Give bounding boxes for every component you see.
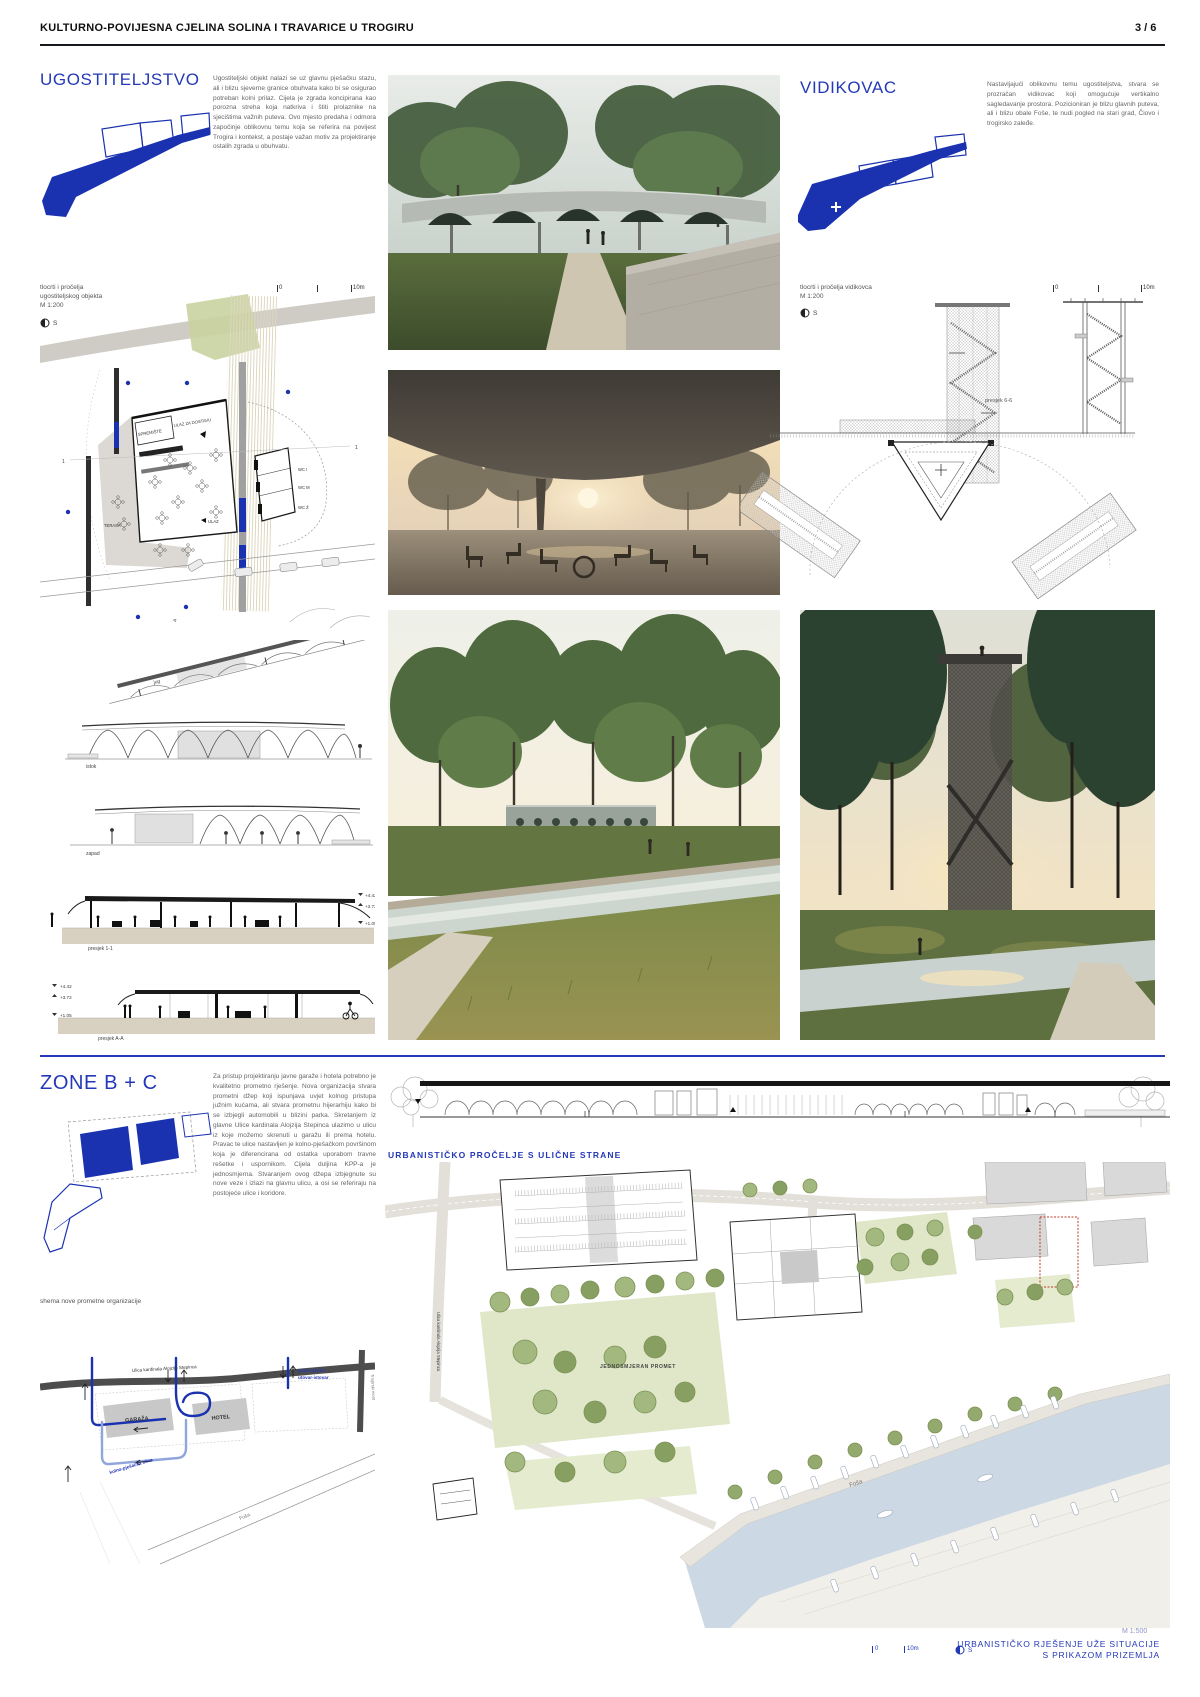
elevation-jug: jug xyxy=(40,640,375,715)
traffic-schema-label: shema nove prometne organizacije xyxy=(40,1298,141,1307)
ugostiteljstvo-floor-plan: SPREMIŠTE ULAZ ZA DOSTAVU WC I WC M WC Ž… xyxy=(40,250,375,640)
small-pavilion xyxy=(433,1478,477,1520)
label-wc-m: WC M xyxy=(298,485,310,490)
elevation-istok: istok xyxy=(40,716,375,771)
label-oneway: JEDNOSMJERAN PROMET xyxy=(600,1364,676,1370)
svg-text:+1.05: +1.05 xyxy=(365,921,375,926)
label-pedestrian-street: kolno-pješačka ulica xyxy=(109,1457,154,1475)
label-terasa: TERASA xyxy=(104,523,121,528)
render-pavilion-exterior xyxy=(388,75,780,350)
level-markers-left: +4.42 +3.72 +1.05 xyxy=(52,984,72,1018)
label-presjek-a-a: presjek A-A xyxy=(98,1036,124,1042)
label-street-vertical: Ulica kardinala Alojzija Stepinca xyxy=(436,1312,441,1372)
elevation-zapad: zapad xyxy=(40,800,375,858)
label-bridge: Trogirski most xyxy=(370,1374,375,1401)
render-park-view xyxy=(388,610,780,1040)
vidikovac-caption: tlocrti i pročelja vidikovca M 1:200 xyxy=(800,284,872,302)
tower xyxy=(938,646,1022,920)
svg-text:+1.05: +1.05 xyxy=(60,1013,72,1018)
wc-block xyxy=(254,448,295,521)
section-marker-1-left: 1 xyxy=(62,459,65,465)
garage-building xyxy=(500,1170,697,1270)
triangle-core xyxy=(888,440,994,520)
label-market-access-1: prilaz tržnici xyxy=(298,1368,325,1373)
vidikovac-paragraph: Nastavljajući oblikovnu temu ugostiteljs… xyxy=(987,80,1159,129)
map-scale: M 1:500 xyxy=(1122,1628,1147,1635)
section-divider xyxy=(40,1055,1165,1057)
label-presjek-6-6: presjek 6-6 xyxy=(985,398,1012,404)
label-istok: istok xyxy=(86,764,97,770)
label-fosa: Foša xyxy=(239,1512,252,1522)
section-1-1: +4.42 +3.72 +1.05 presjek 1-1 xyxy=(40,888,375,952)
vidikovac-site-diagram xyxy=(798,122,970,242)
compass-icon xyxy=(955,1645,965,1655)
section-marker-1-right: 1 xyxy=(355,445,358,451)
existing-buildings xyxy=(973,1162,1167,1266)
section-title-vidikovac: VIDIKOVAC xyxy=(800,78,897,98)
svg-text:+3.72: +3.72 xyxy=(60,995,72,1000)
page-number: 3 / 6 xyxy=(1135,22,1156,34)
urban-street-elevation xyxy=(385,1075,1170,1145)
label-market-access-2: utovar-istovar xyxy=(298,1375,329,1380)
compass-icon xyxy=(800,308,810,318)
urban-site-plan: JEDNOSMJERAN PROMET Foša Ulica kardinala… xyxy=(385,1162,1170,1628)
section-marker-a: A xyxy=(172,617,178,622)
cyclist xyxy=(343,1002,358,1019)
map-north-indicator: S xyxy=(955,1645,972,1655)
label-wc-i: WC I xyxy=(298,467,307,472)
label-jug: jug xyxy=(152,678,161,686)
section-title-zone-b-c: ZONE B + C xyxy=(40,1072,158,1095)
label-main-street: Ulica kardinala Alojzija Stepinca xyxy=(132,1364,197,1373)
ugostiteljstvo-paragraph: Ugostiteljski objekt nalazi se uz glavnu… xyxy=(213,74,376,152)
label-presjek-1-1: presjek 1-1 xyxy=(88,946,113,952)
ugostiteljstvo-site-diagram xyxy=(40,105,215,225)
section-title-ugostiteljstvo: UGOSTITELJSTVO xyxy=(40,70,200,90)
traffic-scheme: Ulica kardinala Alojzija Stepinca Trogir… xyxy=(40,1332,375,1590)
hotel-building xyxy=(730,1214,862,1320)
park-main xyxy=(480,1292,730,1448)
label-ulaz: ULAZ xyxy=(208,519,219,524)
header-rule xyxy=(40,44,1165,46)
north-indicator: S xyxy=(800,308,817,318)
svg-text:+3.72: +3.72 xyxy=(365,904,375,909)
map-scalebar: 0 10m xyxy=(872,1646,932,1656)
render-vidikovac-tower xyxy=(800,610,1155,1040)
urban-elevation-title: URBANISTIČKO PROČELJE S ULIČNE STRANE xyxy=(388,1150,621,1160)
left-wing xyxy=(740,472,860,578)
label-wc-z: WC Ž xyxy=(298,505,309,510)
level-markers-right: +4.42 +3.72 +1.05 xyxy=(358,893,375,926)
competition-board: KULTURNO-POVIJESNA CJELINA SOLINA I TRAV… xyxy=(0,0,1200,1697)
label-zapad: zapad xyxy=(86,851,100,857)
svg-text:+4.42: +4.42 xyxy=(365,893,375,898)
zone-site-diagram xyxy=(40,1110,215,1260)
render-under-canopy xyxy=(388,370,780,595)
board-title: KULTURNO-POVIJESNA CJELINA SOLINA I TRAV… xyxy=(40,22,414,34)
zone-paragraph: Za pristup projektiranju javne garaže i … xyxy=(213,1072,376,1199)
vidikovac-plan xyxy=(740,410,1170,605)
right-wing xyxy=(1012,493,1136,599)
plus-mark-icon xyxy=(108,184,118,194)
svg-text:+4.42: +4.42 xyxy=(60,984,72,989)
section-a-a: +4.42 +3.72 +1.05 presjek A-A xyxy=(40,976,375,1042)
bridge-road xyxy=(360,1350,362,1432)
